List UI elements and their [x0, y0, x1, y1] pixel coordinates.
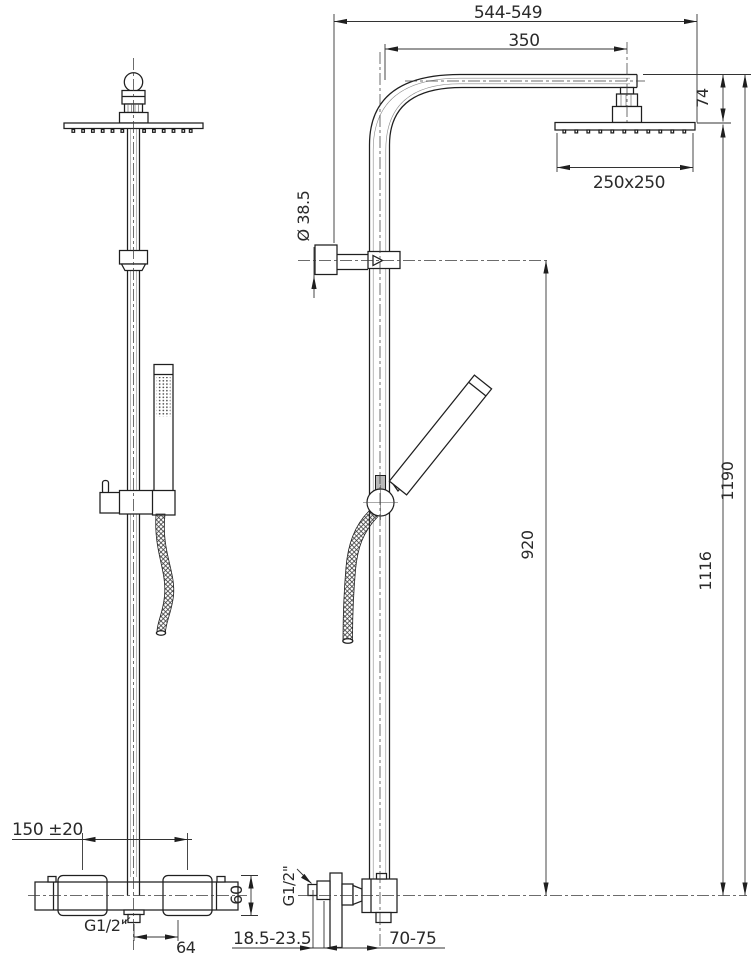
inlet-thread-side-label: G1/2"	[280, 866, 298, 907]
spray-face-dots	[157, 377, 171, 417]
overhead-shower-side	[555, 88, 695, 133]
dim-head-height-label: 1116	[696, 551, 715, 590]
hand-shower-front	[154, 365, 173, 494]
dim-bracket-diameter: Ø 38.5	[294, 191, 317, 298]
shower-hose-front	[156, 514, 174, 635]
front-view	[28, 58, 247, 950]
dim-head-drop-label: 74	[693, 88, 712, 108]
spray-nozzles-front	[72, 130, 192, 133]
outlet-front	[128, 915, 140, 923]
hand-shower-side	[376, 375, 492, 495]
wall-bracket-side	[315, 245, 400, 275]
dim-head-size-label: 250x250	[593, 173, 665, 193]
outlet-thread-front-label: G1/2"	[84, 916, 128, 935]
dim-supply-centers-label: 150 ±20	[12, 820, 83, 840]
shower-head-plate-side	[555, 123, 695, 131]
hook-pin	[103, 481, 109, 494]
dim-arm-length-label: 350	[508, 31, 539, 51]
hand-shower-cup	[153, 491, 176, 516]
wall-plate-side	[330, 873, 342, 948]
dim-head-size: 250x250	[557, 133, 693, 193]
dim-outlet-thread-front: G1/2"	[84, 916, 130, 935]
inlet-stub-side	[308, 885, 317, 896]
dim-bracket-height-label: 920	[518, 530, 537, 560]
safety-stop-button-right	[217, 877, 225, 883]
mixer-body-front	[35, 882, 238, 910]
dim-wall-to-pipe-label: 70-75	[389, 929, 436, 949]
dim-top-span-label: 544-549	[474, 3, 542, 23]
dim-arm-length: 350	[385, 31, 627, 80]
shower-hose-side	[343, 511, 378, 643]
dim-escutcheon-size-label: 60	[227, 885, 246, 905]
dim-bracket-height: 920	[518, 261, 549, 896]
safety-stop-button-left	[48, 877, 56, 883]
dim-outlet-offset-label: 64	[176, 938, 196, 957]
mixer-valve-side	[308, 873, 397, 948]
dim-inlet-thread-side: G1/2"	[280, 866, 312, 907]
dim-head-height: 1116	[696, 125, 726, 896]
dim-total-height: 1190	[718, 75, 748, 896]
technical-drawing-sheet: 544-549 350 74 250x250	[0, 0, 754, 962]
side-view	[298, 42, 747, 948]
dim-bracket-diameter-label: Ø 38.5	[294, 191, 313, 242]
dim-supply-centers: 150 ±20	[12, 820, 192, 870]
hand-shower-body-side	[389, 375, 491, 495]
dim-total-height-label: 1190	[718, 461, 737, 500]
dim-wall-gap-label: 18.5-23.5	[233, 929, 311, 949]
outlet-side	[376, 913, 391, 923]
shower-system-technical-drawing: 544-549 350 74 250x250	[0, 0, 754, 962]
wall-flange	[315, 245, 337, 275]
mixer-valve-front	[35, 876, 238, 923]
dim-outlet-offset: 64	[134, 920, 196, 957]
